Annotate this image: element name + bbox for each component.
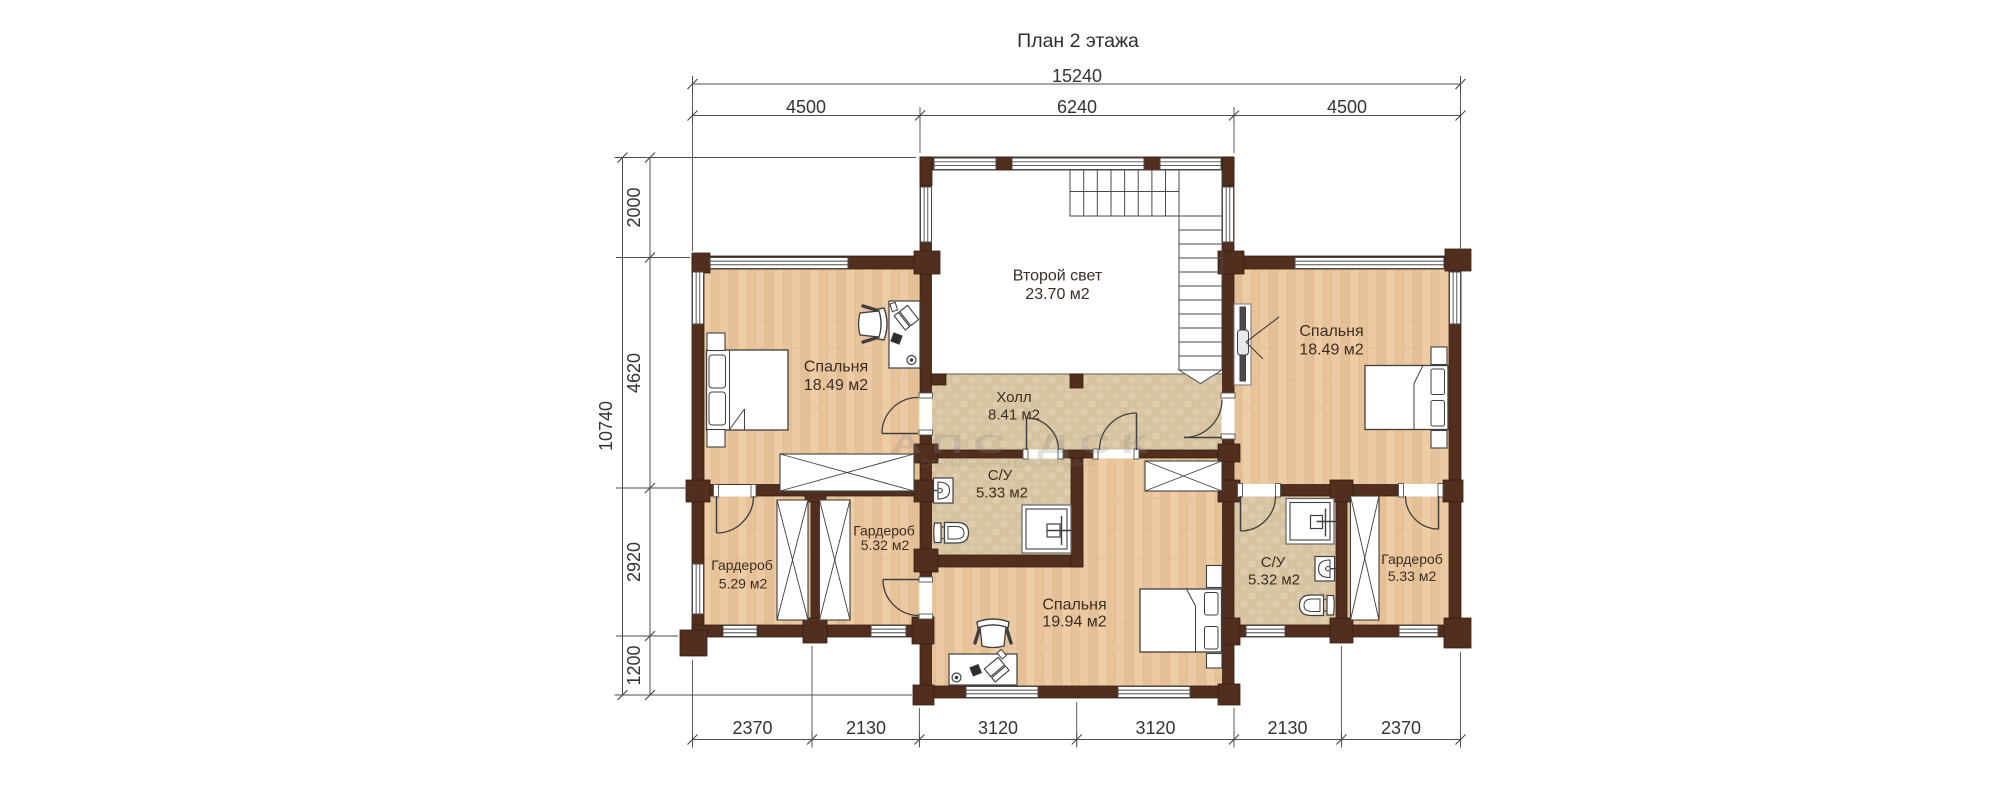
svg-text:2000: 2000 <box>624 187 644 227</box>
svg-text:2920: 2920 <box>624 542 644 582</box>
svg-text:2370: 2370 <box>1381 718 1421 738</box>
svg-text:С/У: С/У <box>1261 554 1286 571</box>
svg-text:4620: 4620 <box>624 353 644 393</box>
svg-text:18.49 м2: 18.49 м2 <box>1299 342 1363 359</box>
svg-text:3120: 3120 <box>978 718 1018 738</box>
svg-text:План 2 этажа: План 2 этажа <box>1017 30 1139 52</box>
svg-text:Спальня: Спальня <box>1042 597 1106 614</box>
svg-text:1200: 1200 <box>624 645 644 685</box>
svg-text:3120: 3120 <box>1135 718 1175 738</box>
svg-text:19.94 м2: 19.94 м2 <box>1042 614 1106 631</box>
svg-text:ОСНОВАТЕЛЬНЫЙ ДОМОКОМБИНАТ: ОСНОВАТЕЛЬНЫЙ ДОМОКОМБИНАТ <box>922 457 1096 470</box>
svg-text:Гардероб: Гардероб <box>1381 551 1443 567</box>
svg-text:5.29 м2: 5.29 м2 <box>719 576 768 592</box>
svg-text:4500: 4500 <box>786 97 826 117</box>
svg-text:5.33 м2: 5.33 м2 <box>1388 568 1437 584</box>
svg-text:Холл: Холл <box>996 389 1031 406</box>
svg-text:6240: 6240 <box>1057 97 1097 117</box>
svg-text:5.32 м2: 5.32 м2 <box>1248 572 1300 589</box>
svg-text:АПС ДСК: АПС ДСК <box>890 429 1158 459</box>
svg-text:5.33 м2: 5.33 м2 <box>976 485 1028 502</box>
svg-text:2130: 2130 <box>846 718 886 738</box>
svg-text:2130: 2130 <box>1267 718 1307 738</box>
svg-text:10740: 10740 <box>596 401 616 451</box>
svg-text:Спальня: Спальня <box>804 359 868 376</box>
svg-text:8.41 м2: 8.41 м2 <box>988 407 1040 424</box>
svg-text:4500: 4500 <box>1327 97 1367 117</box>
svg-text:Спальня: Спальня <box>1299 323 1363 340</box>
svg-text:Гардероб: Гардероб <box>711 557 773 573</box>
svg-text:5.32 м2: 5.32 м2 <box>861 537 910 553</box>
svg-text:15240: 15240 <box>1052 66 1102 86</box>
svg-text:23.70 м2: 23.70 м2 <box>1025 286 1089 303</box>
svg-text:Второй свет: Второй свет <box>1013 268 1103 285</box>
svg-text:18.49 м2: 18.49 м2 <box>804 377 868 394</box>
svg-text:2370: 2370 <box>732 718 772 738</box>
